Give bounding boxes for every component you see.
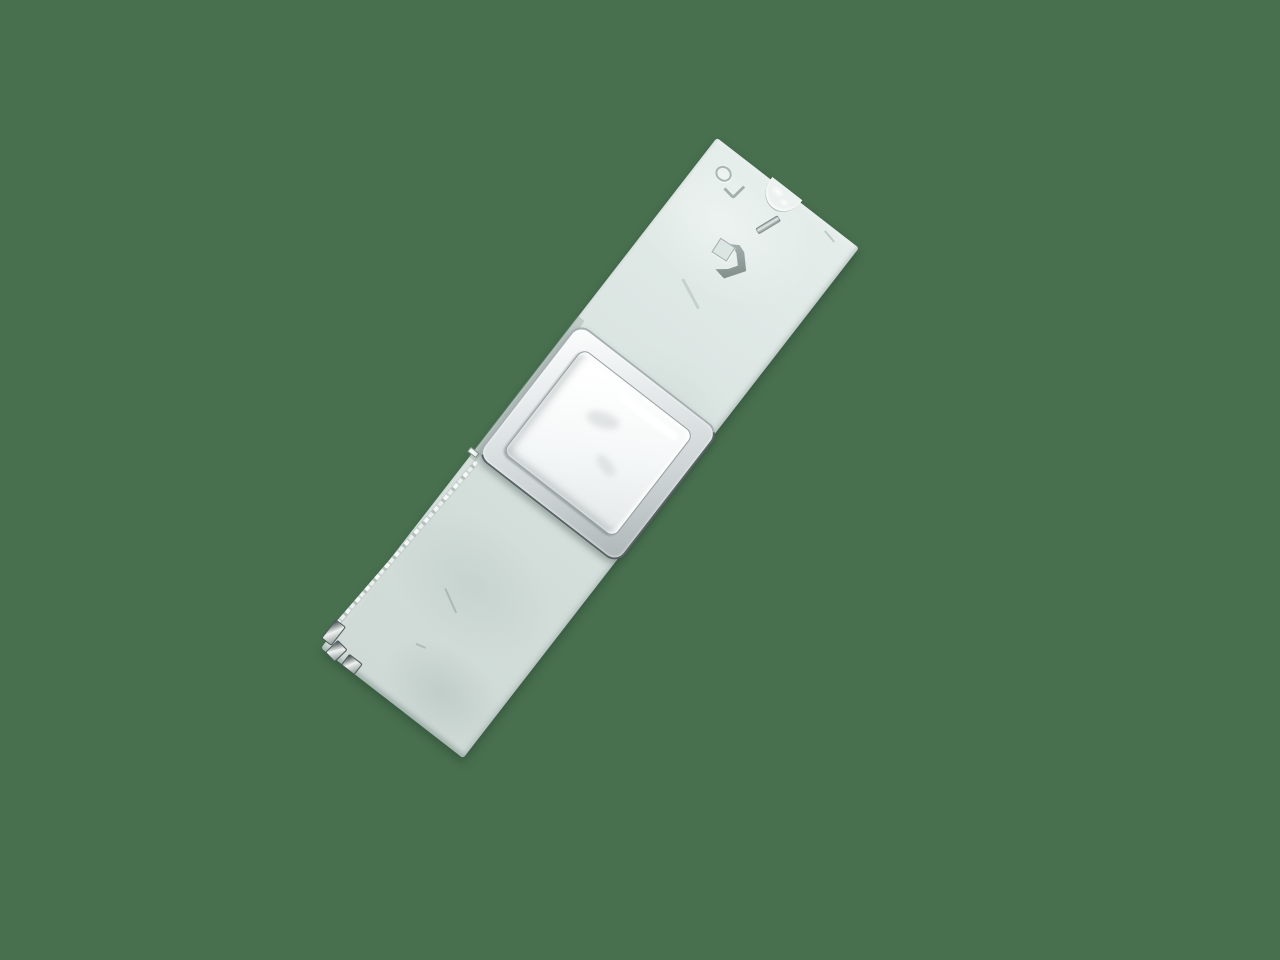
logo-square-shape xyxy=(711,238,735,262)
cube-arrow-logo xyxy=(703,234,757,287)
edge-castellation xyxy=(757,177,802,220)
surface-scratch xyxy=(444,588,457,613)
can-smudge xyxy=(584,407,621,433)
can-smudge xyxy=(594,451,619,479)
white-substrate-strip xyxy=(321,138,859,759)
photo-background xyxy=(0,0,1280,960)
solder-pad xyxy=(321,619,346,646)
specular-highlight xyxy=(617,392,680,442)
metal-can-shield xyxy=(475,322,720,565)
surface-scratch xyxy=(415,643,426,649)
surface-scratch xyxy=(824,230,835,243)
surface-smudge xyxy=(681,278,700,309)
solder-pad xyxy=(341,654,363,675)
bar-mark xyxy=(755,215,781,234)
